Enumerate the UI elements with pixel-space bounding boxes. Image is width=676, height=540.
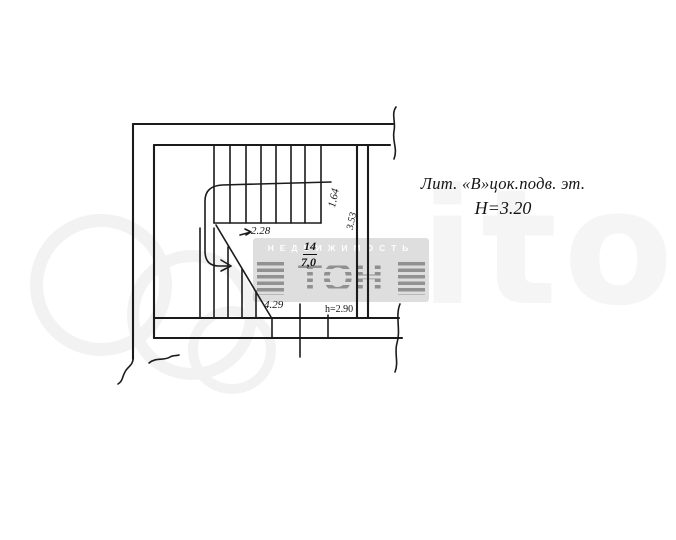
flight-break-line [216,225,271,317]
litera-floor-label: Лит. «В»цок.подв. эт. [406,174,600,194]
scanned-floorplan-page: ito НЕДВИЖИМОСТЬ ТОН [0,0,676,540]
room-area-label: 7,0 [301,255,316,270]
dim-lower-run-label: 4.29 [264,299,283,311]
room-number-label: 14 [303,239,317,255]
dim-tick-upper-run [240,229,251,235]
floor-height-label: Н=3.20 [406,198,600,219]
floorplan-linework [0,0,676,540]
lower-flight-treads [200,228,256,318]
dim-room-height-label: h=2.90 [325,304,353,315]
stairwell-right-wall [357,145,368,318]
door-opening-ticks [272,304,328,357]
outer-walls [133,124,402,359]
dim-upper-run-label: 2.28 [251,225,270,237]
